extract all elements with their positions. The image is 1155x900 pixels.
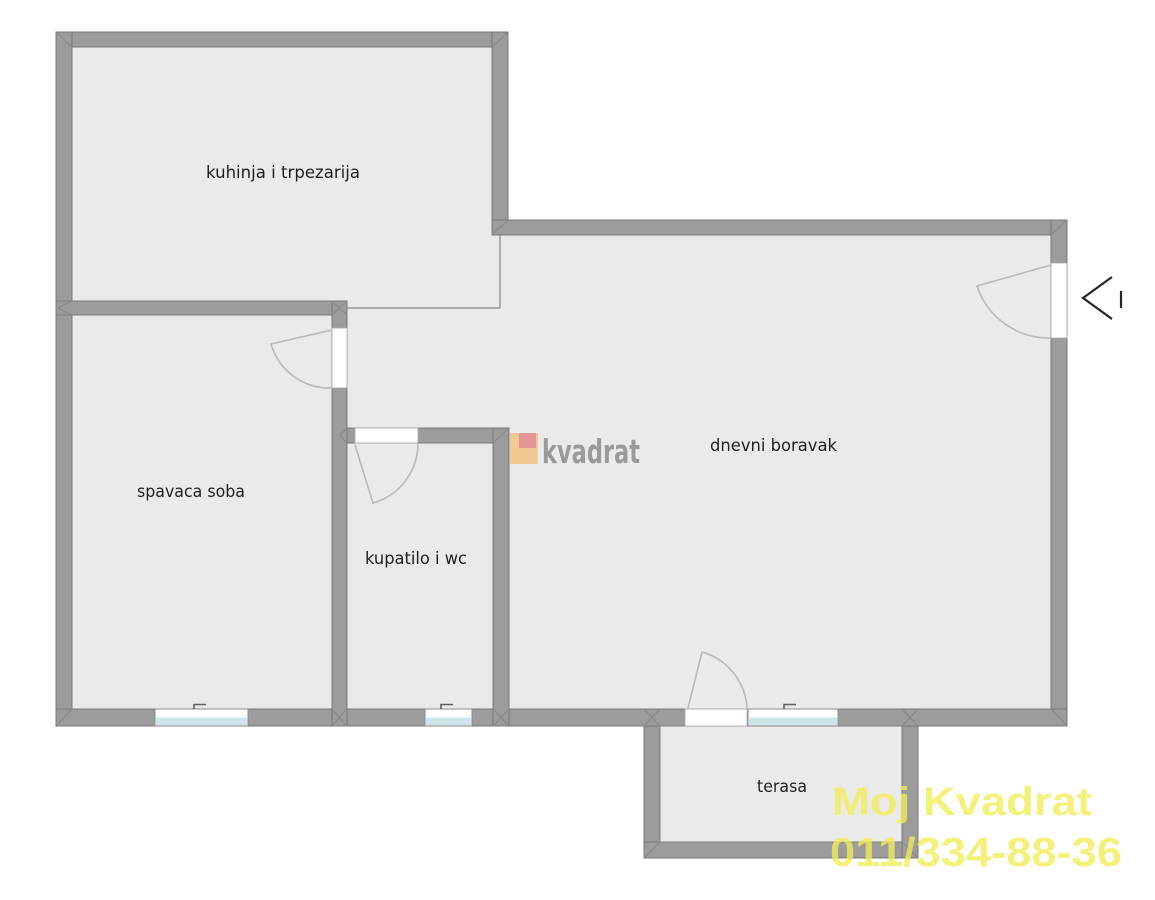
room-label-terrace: terasa (757, 777, 807, 797)
bathroom-door-opening (355, 428, 418, 443)
room-label-living-room: dnevni boravak (710, 436, 837, 456)
bathroom-window (425, 709, 472, 726)
wall-kitchen-bottom (56, 301, 347, 315)
terrace-window (748, 709, 838, 726)
logo-pink-square (519, 433, 536, 448)
bathroom-window-glass (426, 718, 471, 726)
entry-door-opening (1051, 263, 1067, 338)
agency-watermark-phone: 011/334-88-36 (830, 829, 1122, 875)
wall-kitchen-top (56, 32, 508, 47)
bedroom-door-opening (332, 328, 347, 388)
wall-kitchen-right (492, 32, 508, 235)
logo-text: kvadrat (542, 432, 640, 471)
terrace-door-opening (685, 709, 747, 726)
wall-terrace-left (644, 726, 660, 858)
wall-bathroom-right (493, 428, 509, 726)
floor-plan-canvas: kuhinja i trpezarija spavaca soba kupati… (0, 0, 1155, 900)
bedroom-window (155, 709, 248, 726)
bedroom-window-glass (156, 718, 247, 726)
wall-left (56, 32, 72, 726)
terrace-window-glass (749, 718, 837, 726)
room-label-kitchen: kuhinja i trpezarija (206, 163, 360, 183)
agency-watermark-name: Moj Kvadrat (832, 780, 1092, 824)
room-label-bedroom: spavaca soba (137, 482, 245, 502)
wall-living-top (492, 220, 1067, 235)
room-label-bathroom: kupatilo i wc (365, 549, 467, 569)
